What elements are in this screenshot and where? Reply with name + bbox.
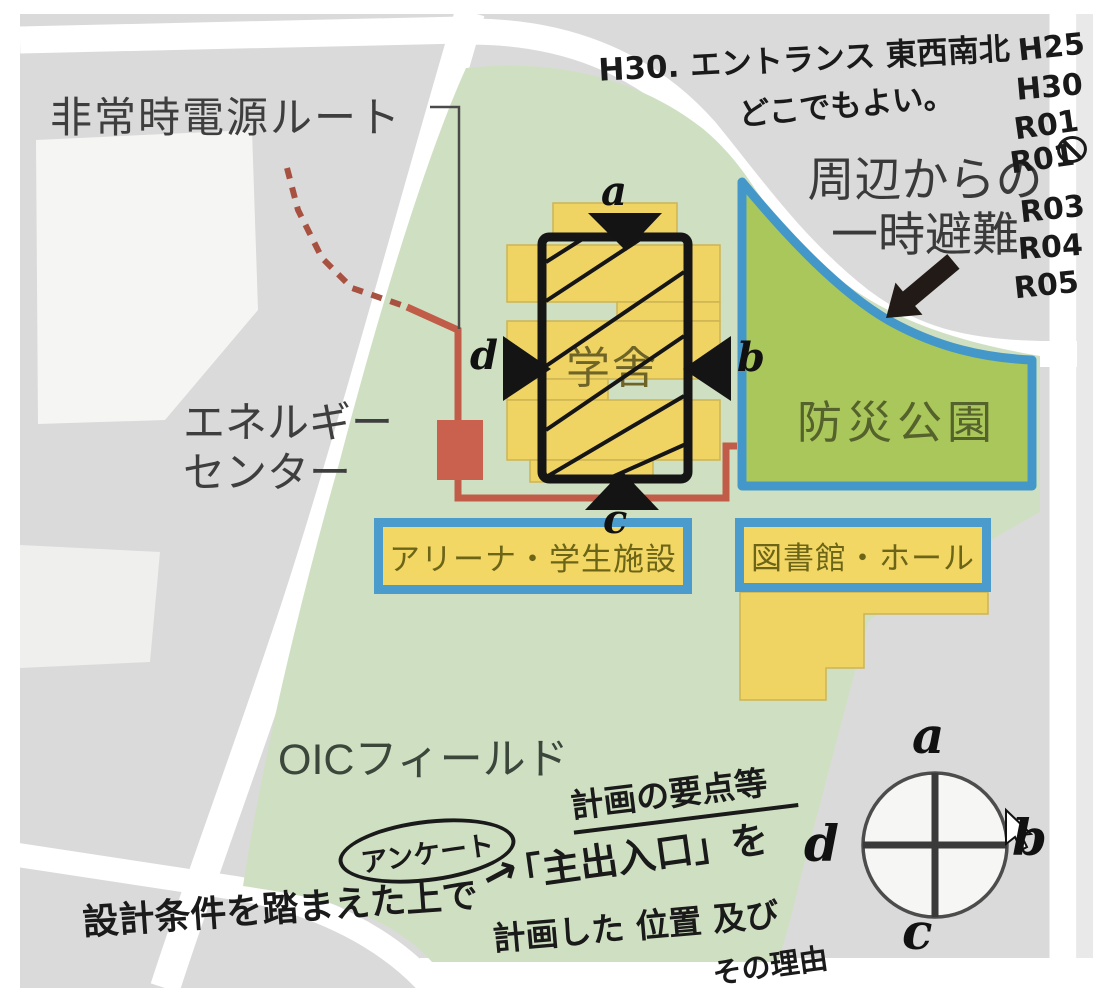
compass-letter-a: a [912,706,944,765]
arena-facilities-label: アリーナ・学生施設 [389,534,677,579]
energy-center-label: エネルギー センター [183,398,393,499]
building-letter-c: c [603,496,627,543]
oic-field-label: OICフィールド [278,725,569,787]
arena-facilities-box: アリーナ・学生施設 [374,518,692,594]
emergency-route-label: 非常時電源ルート [50,84,402,145]
year-item-h30: H30 [1015,67,1085,108]
year-item-r05: R05 [1012,265,1080,307]
library-hall-box: 図書館・ホール [735,518,991,592]
city-block-w [20,545,160,668]
road-top [20,30,462,40]
compass-letter-c: c [902,902,932,961]
energy-center-label-line1: エネルギー [183,398,393,448]
energy-center-label-line2: センター [183,448,393,498]
page-margin-right [1093,0,1111,988]
school-building-label: 学舎 [566,332,658,396]
year-item-r03: R03 [1018,189,1086,231]
building-letter-d: d [470,332,498,379]
building-letter-a: a [601,168,627,215]
compass-letter-b: b [1012,808,1047,867]
year-item-h25: H25 [1016,27,1086,69]
building-letter-b: b [737,334,765,381]
disaster-park-label: 防災公園 [797,386,997,451]
compass-letter-d: d [804,814,839,873]
year-item-r04: R04 [1017,228,1084,267]
annotated-campus-map: 非常時電源ルート エネルギー センター 学舎 防災公園 周辺からの 一時避難 O… [0,0,1111,988]
library-hall-label: 図書館・ホール [751,533,975,578]
energy-center-building [437,420,483,480]
